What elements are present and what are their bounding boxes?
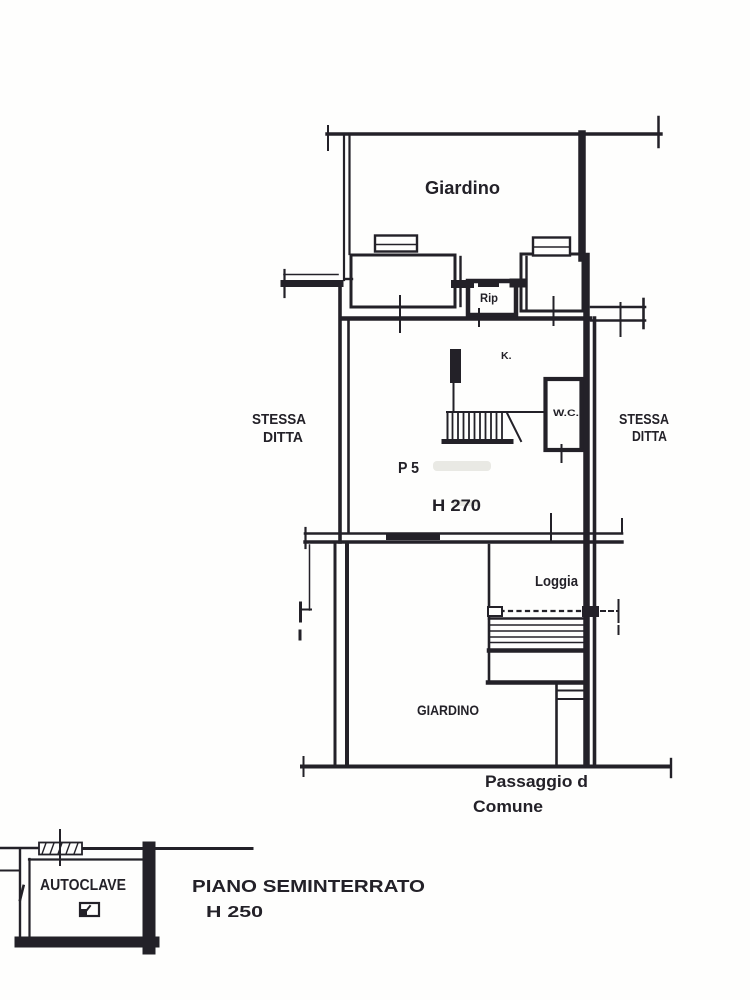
svg-text:W.C.: W.C.	[553, 408, 579, 419]
svg-text:K.: K.	[501, 350, 512, 362]
svg-text:STESSA: STESSA	[252, 412, 306, 428]
svg-text:DITTA: DITTA	[632, 429, 667, 445]
svg-text:Comune: Comune	[473, 798, 543, 816]
svg-text:GIARDINO: GIARDINO	[417, 702, 479, 718]
svg-text:AUTOCLAVE: AUTOCLAVE	[40, 877, 126, 894]
svg-text:Loggia: Loggia	[535, 573, 579, 590]
svg-text:STESSA: STESSA	[619, 412, 669, 428]
svg-text:Rip: Rip	[480, 291, 498, 305]
svg-text:H 250: H 250	[206, 904, 263, 921]
svg-text:DITTA: DITTA	[263, 430, 303, 446]
svg-text:Giardino: Giardino	[425, 178, 500, 198]
svg-text:Passaggio d: Passaggio d	[485, 773, 588, 791]
svg-text:H 270: H 270	[432, 497, 481, 515]
svg-text:PIANO SEMINTERRATO: PIANO SEMINTERRATO	[192, 876, 425, 896]
svg-text:P 5: P 5	[398, 460, 419, 477]
